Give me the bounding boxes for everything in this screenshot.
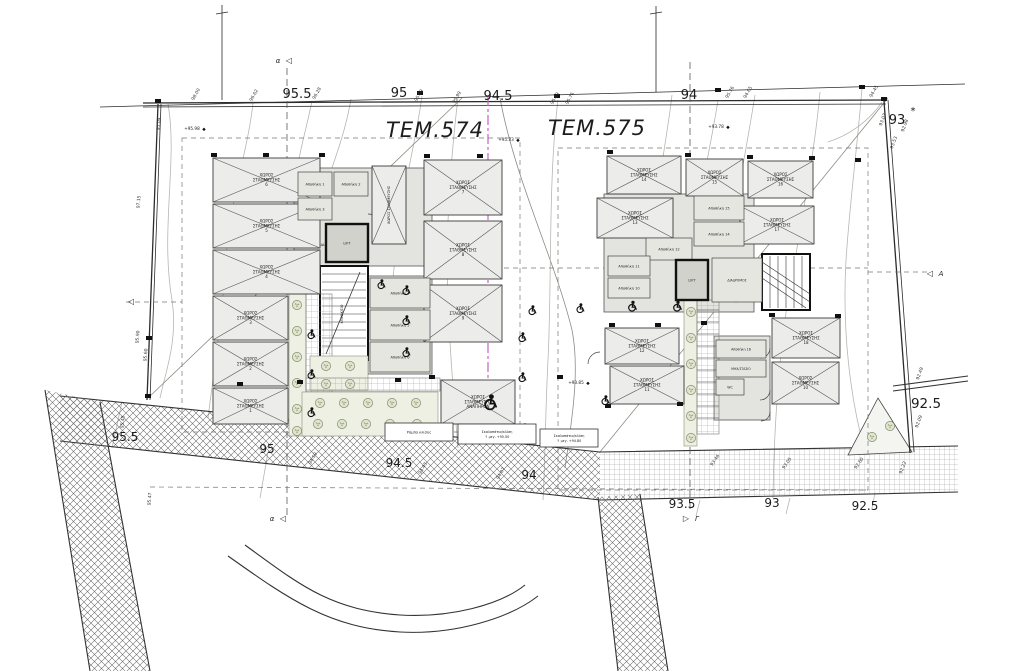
stall-label: ΧΩΡΟΣ ΣΤΑΘΜΕΥΣΗΣ [387,185,391,224]
wheel [519,336,525,342]
wheel [577,307,583,313]
room-label: Αποθήκη 10 [618,286,640,290]
label-box-text: Ράμπα κλίσης [407,430,432,434]
tree-speckle [415,402,416,403]
tree [292,300,301,309]
paved-triangle [848,398,912,455]
parking-stall: ΧΩΡΟΣΣΤΑΘΜΕΥΣΗΣ15 [686,159,743,196]
lift-shaft: LIFT [676,260,708,300]
parking-stall: ΧΩΡΟΣΣΤΑΘΜΕΥΣΗΣ8 [424,221,502,279]
site-plan-drawing: ΧΩΡΟΣΣΤΑΘΜΕΥΣΗΣ6ΧΩΡΟΣΣΤΑΘΜΕΥΣΗΣ5ΧΩΡΟΣΣΤΑ… [0,0,1024,671]
contour-elevation-label: 94 [681,88,698,103]
head [676,301,679,304]
stall-label: 11 [644,387,650,392]
tree-speckle [689,336,690,337]
column-tick [769,313,775,317]
tree-speckle [296,332,297,333]
tree [345,361,354,370]
tree [686,307,695,316]
survey-point-label: 96.28 [311,86,323,100]
survey-point-label: 97.15 [135,195,142,208]
tree [339,398,348,407]
stall-label: 8 [462,252,465,257]
parking-stall: ΧΩΡΟΣΣΤΑΘΜΕΥΣΗΣΑΝΑΠΗΡΩΝ [441,380,515,424]
spot-elevation-marker: ◆ [726,126,730,131]
room: Αποθήκη 4 [370,278,430,308]
room-label: Αποθήκη 12 [658,247,679,251]
stall-label: 13 [632,220,638,225]
tree-speckle [325,367,326,368]
room: Αποθήκη 6 [370,342,430,372]
tree-speckle [348,364,349,365]
tree-speckle [296,408,297,409]
column-tick [211,153,217,157]
tree-speckle [692,415,693,416]
room: Αποθήκη 3 [298,198,332,220]
survey-point-label: 95.76 [564,91,576,105]
parking-stall: ΧΩΡΟΣΣΤΑΘΜΕΥΣΗΣ3 [213,296,288,340]
tree-speckle [369,402,370,403]
tree-speckle [888,424,889,425]
survey-point-label: 95.89 [549,91,561,105]
tree [321,361,330,370]
head [521,372,524,375]
tree-speckle [692,337,693,338]
survey-point-label: 95.76 [724,85,736,99]
label-box-text: Σκαλοπάτια/κλίση [554,434,585,438]
section-marker-letter: A [938,270,944,278]
room-label: Αποθήκη 14 [708,232,730,236]
survey-point-label: 95.45 [119,415,126,428]
tree-speckle [417,402,418,403]
entrance-label-box: Σκαλοπάτια/κλίση↑ μεγ. +95.50 [458,424,536,444]
tree-speckle [296,356,297,357]
wheelchair-icon [577,303,584,312]
tree-speckle [365,425,366,426]
tree-speckle [295,329,296,330]
column-tick [859,85,865,89]
room-label: LIFT [688,278,696,282]
tree-speckle [690,391,691,392]
tree-speckle [296,384,297,385]
stall-label: 17 [774,227,780,232]
room: Αποθήκη 15 [694,196,744,220]
room: Αποθήκη 2 [334,172,368,196]
survey-point-label: 94.65 [742,85,754,99]
room: Αποθήκη 12 [646,238,692,260]
tree-speckle [296,306,297,307]
lift-shaft: LIFT [326,224,368,262]
survey-point-label: 95.90 [134,330,141,343]
contour-elevation-label: 95.5 [283,87,312,102]
contour-elevation-label: 93.5 [669,497,696,511]
tree-speckle [325,383,326,384]
tree-speckle [295,429,296,430]
tree [361,419,370,428]
tree-speckle [341,423,342,424]
tree-speckle [871,436,872,437]
label-box-outline [458,424,536,444]
column-tick [395,378,401,382]
room-label: ΜΗΧ/ΣΤΑΣΙΟ [731,367,751,371]
head [604,395,607,398]
tree-speckle [327,383,328,384]
column-tick [605,404,611,408]
stall-label: 3 [249,320,252,325]
tree-speckle [295,407,296,408]
tree-speckle [340,422,341,423]
spot-elevation-marker: ◆ [202,128,206,133]
parking-stall: ΧΩΡΟΣΣΤΑΘΜΕΥΣΗΣ4 [213,250,320,294]
stall-label: 1 [249,408,252,413]
stall-label: 16 [778,182,784,187]
tree-speckle [689,310,690,311]
room: ΚΛΙΜΑΚ/ΣΙΟ [340,304,344,323]
tree-speckle [871,438,872,439]
tree [292,426,301,435]
wheelchair-icon [602,395,609,404]
tree-speckle [298,356,299,357]
tree-speckle [296,330,297,331]
column-tick [607,150,613,154]
curved-road-edge [228,556,538,632]
column-tick [701,321,707,325]
tree-speckle [296,358,297,359]
stall-label: 12 [639,348,645,353]
stall-label: 14 [641,177,647,182]
tree [337,419,346,428]
tree [686,385,695,394]
tree-speckle [690,389,691,390]
section-marker-letter: α [270,515,275,523]
planting-strip-right [684,300,697,446]
head [631,301,634,304]
tree-speckle [873,436,874,437]
tree-speckle [351,365,352,366]
head [310,369,313,372]
survey-point-label: 93.07 [878,112,888,126]
tree-speckle [690,439,691,440]
tree-speckle [348,382,349,383]
tree-speckle [343,402,344,403]
parking-stall: ΧΩΡΟΣΣΤΑΘΜΕΥΣΗΣ13 [597,198,673,238]
head [489,394,494,399]
room: ΔΙΑΔΡΟΜΟΣ [712,258,762,302]
parking-stall: ΧΩΡΟΣΣΤΑΘΜΕΥΣΗΣ18 [772,318,840,358]
spot-elevation-label: +93.85 [568,380,584,385]
parking-stall: ΧΩΡΟΣΣΤΑΘΜΕΥΣΗΣ7 [424,160,502,215]
tree-speckle [391,404,392,405]
tree-speckle [349,383,350,384]
head [405,285,408,288]
room: WC [716,379,744,395]
room: Αποθήκη 1 [298,172,332,196]
tree-speckle [692,363,693,364]
room-label: ΚΛΙΜΑΚ/ΣΙΟ [340,304,344,323]
column-tick [557,375,563,379]
stall-label: 2 [249,366,252,371]
tree [411,398,420,407]
tree-speckle [298,430,299,431]
room: Αποθήκη 11 [608,256,650,276]
tree-speckle [690,437,691,438]
room-label: Αποθήκη 3 [305,207,324,211]
tree-speckle [342,401,343,402]
tree-speckle [296,430,297,431]
room-label: Αποθήκη 1 [305,182,324,186]
tree-speckle [295,303,296,304]
tree-speckle [689,436,690,437]
entrance-label-box: Ράμπα κλίσης [385,423,453,441]
wheelchair-icon [529,305,536,314]
room-label: Αποθήκη 2 [341,182,360,186]
section-marker-symbol: ◁ [127,297,134,306]
parking-stall: ΧΩΡΟΣΣΤΑΘΜΕΥΣΗΣ9 [424,285,502,342]
survey-point-label: 95.60 [142,348,149,361]
stall-label: 18 [803,340,809,345]
stall-label: 15 [712,180,718,185]
tree [686,433,695,442]
column-tick [424,154,430,158]
tree-speckle [891,425,892,426]
tree-speckle [324,364,325,365]
tree-speckle [689,388,690,389]
tree-speckle [690,337,691,338]
label-box-text: ↑ μεγ. +95.50 [485,435,510,439]
tree-speckle [365,423,366,424]
head [531,305,534,308]
tree-speckle [692,437,693,438]
parking-stall: ΧΩΡΟΣΣΤΑΘΜΕΥΣΗΣ2 [213,342,288,386]
tree-speckle [889,425,890,426]
tree-speckle [689,362,690,363]
tree-speckle [870,435,871,436]
parking-stall: ΧΩΡΟΣ ΣΤΑΘΜΕΥΣΗΣ [372,166,406,244]
room-label: Αποθήκη 5 [390,323,409,327]
survey-point-label: 98.00 [190,87,202,101]
spot-elevation-marker: ◆ [586,382,590,387]
tree-speckle [349,385,350,386]
tree-speckle [351,383,352,384]
column-tick [155,99,161,103]
tree-speckle [298,408,299,409]
stall-label: 10 [803,385,809,390]
tree-speckle [690,417,691,418]
wheel [602,399,608,405]
column-tick [146,336,152,340]
survey-point-label: 92.09 [914,414,924,428]
tree-speckle [367,423,368,424]
tree-speckle [295,355,296,356]
parking-stall: ΧΩΡΟΣΣΤΑΘΜΕΥΣΗΣ14 [607,156,681,194]
tree-speckle [690,339,691,340]
head [579,303,582,306]
tree-speckle [319,423,320,424]
tree [686,411,695,420]
tree-speckle [690,363,691,364]
room: Αποθήκη 16 [716,340,766,358]
contour-elevation-label: 95.5 [112,430,139,444]
spot-elevation-marker: ◆ [516,139,520,144]
survey-point-label: 95.47 [146,492,153,505]
spot-elevation-label: +93.78 [708,124,724,129]
head [405,315,408,318]
stall-label: 6 [265,182,268,187]
tree-speckle [393,402,394,403]
tree [321,379,330,388]
section-marker-letter: α [276,57,281,65]
column-tick [145,394,151,398]
column-tick [677,402,683,406]
column-tick [477,154,483,158]
plot-number-label: ΤΕΜ.575 [548,116,646,140]
tree-speckle [295,381,296,382]
column-tick [881,97,887,101]
column-tick [809,156,815,160]
column-tick [835,314,841,318]
contour-elevation-label: 93 [764,496,779,510]
stall-label: 9 [462,316,465,321]
column-tick [715,88,721,92]
tree-speckle [349,367,350,368]
contour-elevation-label: 95 [391,86,408,101]
column-tick [655,323,661,327]
survey-point-label: 92.49 [915,366,925,380]
tree-speckle [345,402,346,403]
head [521,332,524,335]
tree-speckle [317,423,318,424]
tree-speckle [321,402,322,403]
tree-speckle [296,432,297,433]
tree-speckle [316,422,317,423]
survey-point-label: 95.04 [155,117,162,130]
contour-elevation-label: 94.5 [386,456,413,470]
label-box-text: Σκαλοπάτια/κλίση [482,430,513,434]
room-label: Αποθήκη 11 [618,264,639,268]
contour-elevation-label: 92.5 [852,499,879,513]
tree-speckle [296,410,297,411]
tree-speckle [390,401,391,402]
tree [363,398,372,407]
entrance-label-box: Σκαλοπάτια/κλίση↑ μεγ. +94.80 [540,429,598,447]
site-plan-page: ΧΩΡΟΣΣΤΑΘΜΕΥΣΗΣ6ΧΩΡΟΣΣΤΑΘΜΕΥΣΗΣ5ΧΩΡΟΣΣΤΑ… [0,0,1024,671]
tree-speckle [364,422,365,423]
contour-elevation-label: * [911,106,916,117]
tree-speckle [690,311,691,312]
room: Αποθήκη 14 [694,222,744,246]
tree [345,379,354,388]
survey-point-label: 96.62 [248,88,260,102]
tree-speckle [349,365,350,366]
tree-speckle [319,404,320,405]
contour-elevation-label: 92.5 [911,396,941,412]
room: Αποθήκη 10 [608,278,650,298]
tree-speckle [415,404,416,405]
tree [313,419,322,428]
tree-speckle [298,304,299,305]
tree-speckle [690,365,691,366]
tree-speckle [319,402,320,403]
tree [686,333,695,342]
contour-elevation-label: 95 [259,442,274,456]
tree-speckle [318,401,319,402]
stall-label: 5 [265,228,268,233]
column-tick [609,323,615,327]
room-label: LIFT [343,241,351,245]
tree [292,404,301,413]
room: ΜΗΧ/ΣΤΑΣΙΟ [716,360,766,377]
head [310,407,313,410]
parking-stall: ΧΩΡΟΣΣΤΑΘΜΕΥΣΗΣ10 [772,362,839,404]
label-box-outline [540,429,598,447]
contour-elevation-label: 94.5 [484,89,513,104]
head [310,329,313,332]
tree [292,326,301,335]
head [405,347,408,350]
tree-speckle [298,330,299,331]
tree-speckle [341,425,342,426]
tree-speckle [689,414,690,415]
tree-speckle [343,404,344,405]
column-tick [263,153,269,157]
wheelchair-icon [519,372,526,381]
column-tick [297,380,303,384]
plot-number-label: ΤΕΜ.574 [386,118,484,142]
stall-label: 4 [265,274,268,279]
parking-stall: ΧΩΡΟΣΣΤΑΘΜΕΥΣΗΣ17 [740,206,814,244]
tree [315,398,324,407]
tree-speckle [343,423,344,424]
parking-stall: ΧΩΡΟΣΣΤΑΘΜΕΥΣΗΣ12 [605,328,679,364]
tree-speckle [366,401,367,402]
stall-label: 7 [462,190,465,195]
tree-speckle [367,402,368,403]
column-tick [429,375,435,379]
head [380,279,383,282]
tree-speckle [327,365,328,366]
section-marker-symbol: ▷ [683,514,690,523]
tree-speckle [317,425,318,426]
wheel [529,309,535,315]
tree [885,421,894,430]
section-marker-symbol: ◁ [926,269,933,278]
tree [867,432,876,441]
tree-speckle [391,402,392,403]
parking-stall: ΧΩΡΟΣΣΤΑΘΜΕΥΣΗΣ11 [610,366,684,404]
tree-speckle [367,404,368,405]
tree-speckle [325,365,326,366]
label-box-text: ↑ μεγ. +94.80 [557,439,582,443]
room-label: WC [727,385,733,389]
column-tick [685,153,691,157]
tree-speckle [690,415,691,416]
tree [292,352,301,361]
room-label: Αποθήκη 15 [708,206,729,210]
tree-speckle [296,304,297,305]
tree-speckle [325,385,326,386]
section-marker-symbol: ◁ [279,514,286,523]
contour-elevation-label: 94 [521,468,536,482]
tree-speckle [414,401,415,402]
parking-stall: ΧΩΡΟΣΣΤΑΘΜΕΥΣΗΣ16 [748,161,813,198]
tree-speckle [324,382,325,383]
room-label: ΔΙΑΔΡΟΜΟΣ [727,278,746,282]
room: Αποθήκη 5 [370,310,430,340]
room-label: Αποθήκη 16 [731,347,751,351]
branch-road-right [598,494,668,671]
tree-speckle [692,311,693,312]
spot-elevation-label: +95.33 [498,137,514,142]
